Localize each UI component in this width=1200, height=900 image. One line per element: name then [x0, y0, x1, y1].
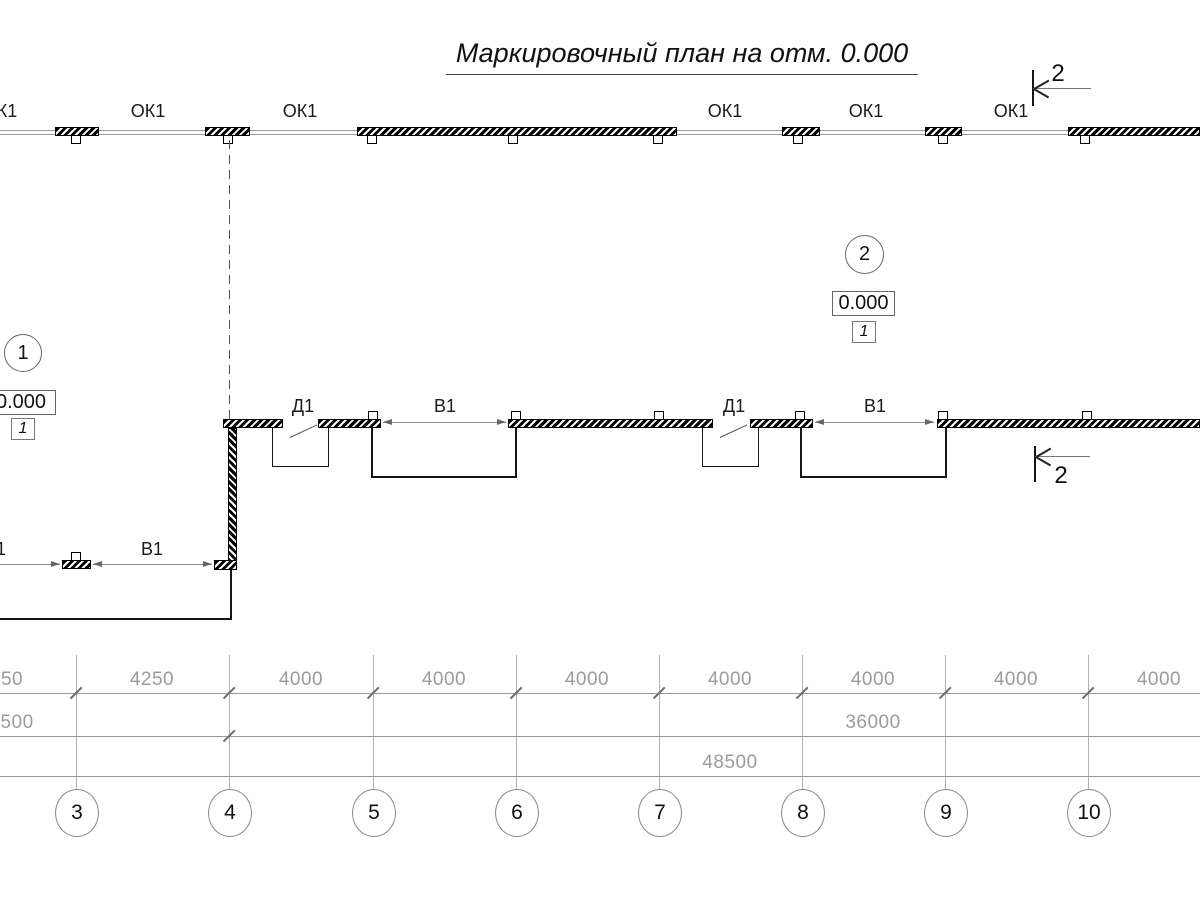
dimension-line-3	[0, 776, 1200, 777]
gate-label: В1	[864, 396, 886, 417]
dim-value: 4000	[279, 669, 323, 691]
column-mark	[508, 135, 518, 144]
column-mark	[223, 135, 233, 144]
section-arrow-icon	[1034, 88, 1049, 98]
door-label: Д1	[292, 396, 314, 417]
door-step-outline	[272, 428, 329, 467]
column-mark	[795, 411, 805, 420]
span-arrow-icon	[497, 419, 506, 425]
drawing-title: Маркировочный план на отм. 0.000	[446, 38, 918, 75]
wall-segment	[318, 419, 381, 428]
extension-line	[229, 655, 230, 789]
dim-value: 4000	[565, 669, 609, 691]
elevation-mark: 0.000	[832, 291, 895, 316]
wall-pier	[62, 560, 91, 569]
axis-dashed-line	[229, 140, 230, 421]
window-label: ОК1	[0, 101, 17, 122]
column-mark	[1082, 411, 1092, 420]
dimension-line-1	[0, 693, 1200, 694]
gate-ramp-outline	[800, 428, 947, 478]
wall-corner-foot	[214, 560, 237, 570]
grid-axis-bubble: 9	[924, 789, 968, 837]
gate-span-line	[93, 564, 212, 565]
dim-value: 4000	[851, 669, 895, 691]
dim-value: 48500	[702, 752, 757, 774]
extension-line	[1088, 655, 1089, 789]
gate-label: В1	[434, 396, 456, 417]
span-arrow-icon	[51, 561, 60, 567]
section-arrow-shaft	[1035, 456, 1090, 457]
dim-value: 12500	[0, 712, 34, 734]
dim-value: 4000	[1137, 669, 1181, 691]
dim-value: 4000	[708, 669, 752, 691]
span-arrow-icon	[815, 419, 824, 425]
wall-segment	[223, 419, 283, 428]
extension-line	[76, 655, 77, 789]
extension-line	[516, 655, 517, 789]
elevation-ref: 1	[11, 418, 35, 440]
gate-label: В1	[141, 539, 163, 560]
span-arrow-icon	[203, 561, 212, 567]
dim-value: 36000	[845, 712, 900, 734]
window-label: ОК1	[283, 101, 318, 122]
column-mark	[793, 135, 803, 144]
section-arrow-shaft	[1033, 88, 1091, 89]
span-arrow-icon	[383, 419, 392, 425]
node-marker: 2	[845, 235, 884, 274]
window-label: ОК1	[849, 101, 884, 122]
grid-axis-bubble: 6	[495, 789, 539, 837]
gate-ramp-outline	[371, 428, 517, 478]
dimension-line-2	[0, 736, 1200, 737]
column-mark	[367, 135, 377, 144]
grid-axis-bubble: 8	[781, 789, 825, 837]
grid-axis-bubble: 3	[55, 789, 99, 837]
dim-value: 4000	[422, 669, 466, 691]
extension-line	[373, 655, 374, 789]
gate-label: В1	[0, 539, 6, 560]
column-mark	[938, 411, 948, 420]
node-marker: 1	[4, 334, 42, 372]
extension-line	[659, 655, 660, 789]
elevation-ref: 1	[852, 321, 876, 343]
wall-segment	[937, 419, 1200, 428]
apron-outline-right	[230, 570, 232, 620]
dim-value: 4000	[994, 669, 1038, 691]
window-label: ОК1	[708, 101, 743, 122]
window-label: ОК1	[131, 101, 166, 122]
section-arrow-icon	[1036, 456, 1051, 466]
section-cut-line	[1034, 446, 1036, 482]
grid-axis-bubble: 10	[1067, 789, 1111, 837]
column-mark	[938, 135, 948, 144]
span-arrow-icon	[925, 419, 934, 425]
column-mark	[653, 135, 663, 144]
apron-outline-bottom	[0, 618, 232, 620]
wall-segment-vertical	[228, 428, 237, 570]
gate-span-line	[815, 422, 934, 423]
column-mark	[654, 411, 664, 420]
wall-segment	[508, 419, 713, 428]
column-mark	[1080, 135, 1090, 144]
gate-span-line	[383, 422, 506, 423]
door-step-outline	[702, 428, 759, 467]
column-mark	[368, 411, 378, 420]
extension-line	[945, 655, 946, 789]
column-mark	[71, 552, 81, 561]
marking-plan-drawing: Маркировочный план на отм. 0.000 ОК1 ОК1…	[0, 0, 1200, 900]
dim-value: 4250	[130, 669, 174, 691]
span-arrow-icon	[93, 561, 102, 567]
grid-axis-bubble: 7	[638, 789, 682, 837]
extension-line	[802, 655, 803, 789]
door-label: Д1	[723, 396, 745, 417]
grid-axis-bubble: 5	[352, 789, 396, 837]
elevation-mark: 0.000	[0, 390, 56, 415]
section-number: 2	[1051, 60, 1064, 88]
window-label: ОК1	[994, 101, 1029, 122]
section-number: 2	[1054, 462, 1067, 490]
dim-value: 4250	[0, 669, 23, 691]
grid-axis-bubble: 4	[208, 789, 252, 837]
column-mark	[71, 135, 81, 144]
column-mark	[511, 411, 521, 420]
wall-segment	[750, 419, 813, 428]
